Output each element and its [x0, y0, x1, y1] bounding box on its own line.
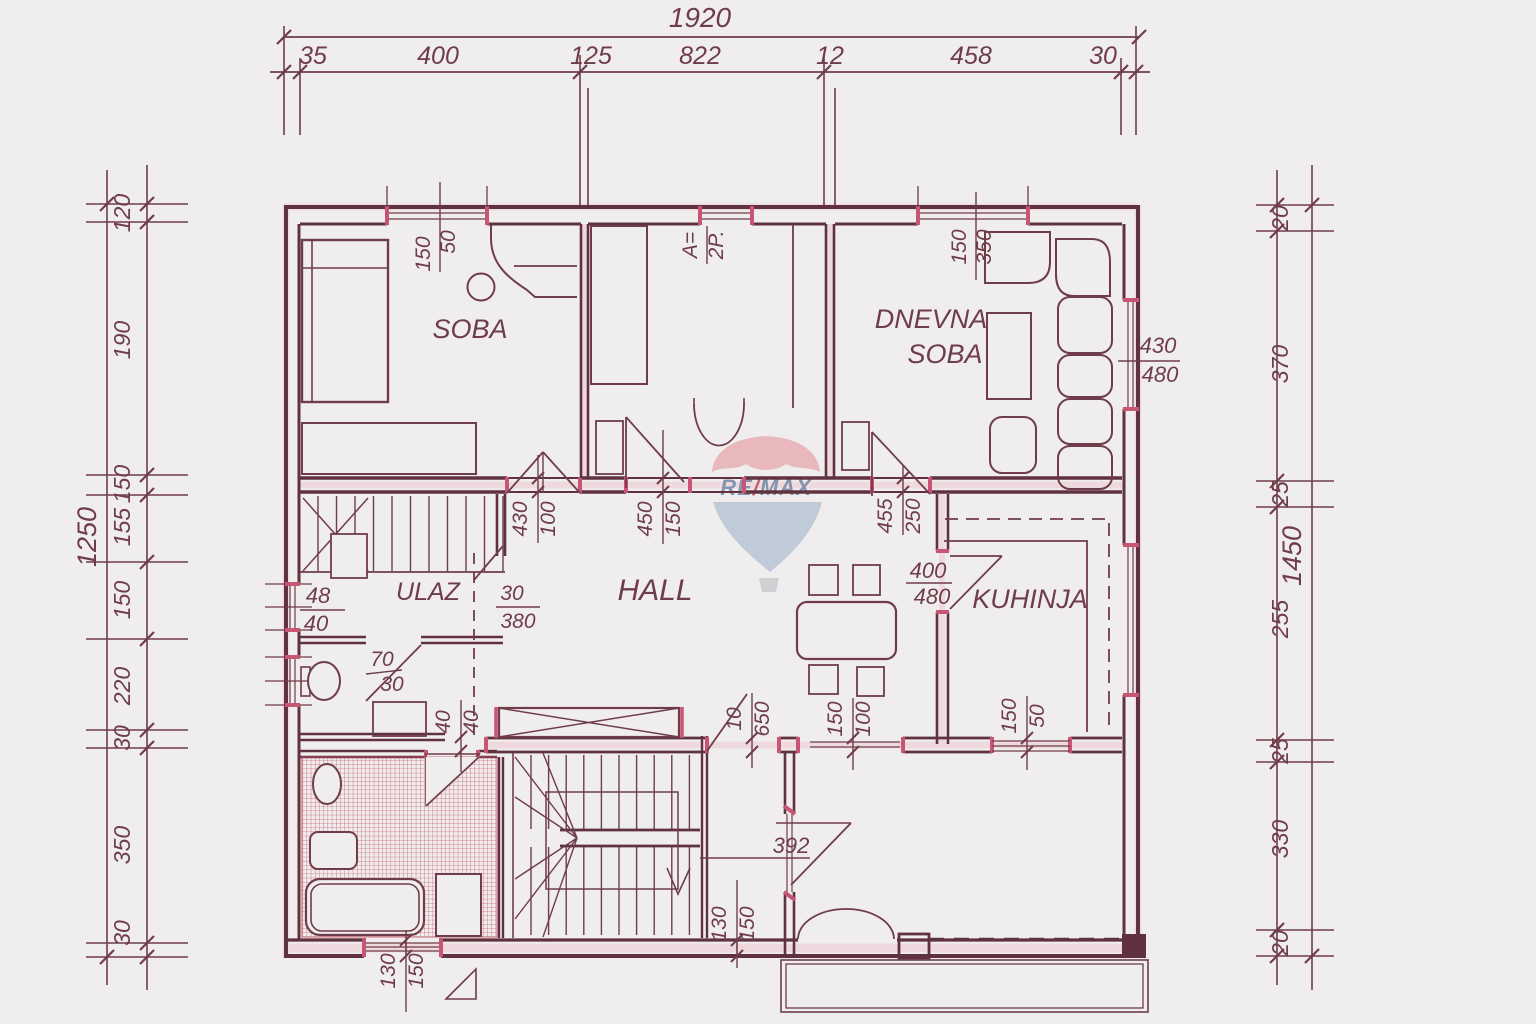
svg-text:650: 650: [751, 701, 774, 736]
svg-text:392: 392: [773, 833, 810, 858]
svg-text:100: 100: [852, 701, 875, 736]
svg-text:458: 458: [950, 42, 992, 70]
svg-text:40: 40: [304, 611, 329, 636]
svg-text:150: 150: [662, 501, 685, 536]
svg-text:1450: 1450: [1277, 526, 1307, 586]
svg-text:155: 155: [109, 508, 135, 547]
svg-text:70: 70: [370, 648, 394, 671]
svg-text:30: 30: [109, 920, 135, 946]
svg-text:150: 150: [948, 229, 971, 264]
svg-text:1250: 1250: [72, 507, 102, 567]
svg-text:40: 40: [460, 710, 483, 734]
svg-text:30: 30: [1089, 42, 1117, 70]
svg-text:20: 20: [1267, 930, 1293, 957]
svg-text:822: 822: [679, 42, 721, 70]
svg-text:1920: 1920: [669, 2, 732, 33]
svg-text:400: 400: [910, 558, 947, 583]
svg-text:125: 125: [570, 42, 612, 70]
svg-text:100: 100: [537, 501, 560, 536]
svg-text:150: 150: [998, 698, 1021, 733]
svg-text:430: 430: [509, 501, 532, 536]
svg-text:10: 10: [723, 707, 746, 731]
svg-text:25: 25: [1267, 481, 1293, 508]
svg-text:400: 400: [417, 42, 459, 70]
svg-text:25: 25: [1267, 738, 1293, 765]
svg-text:30: 30: [500, 582, 524, 605]
svg-text:330: 330: [1267, 820, 1293, 859]
svg-text:150: 150: [824, 701, 847, 736]
svg-text:455: 455: [874, 498, 897, 533]
svg-text:370: 370: [1267, 345, 1293, 384]
svg-text:250: 250: [902, 498, 925, 534]
svg-text:50: 50: [1026, 704, 1049, 728]
svg-text:20: 20: [1267, 205, 1293, 232]
svg-text:150: 150: [412, 236, 435, 271]
svg-text:2P.: 2P.: [705, 231, 728, 261]
svg-text:40: 40: [432, 710, 455, 734]
svg-text:130: 130: [708, 906, 731, 941]
svg-text:150: 150: [405, 953, 428, 988]
svg-text:430: 430: [1140, 333, 1177, 358]
svg-text:480: 480: [1142, 362, 1179, 387]
svg-text:350: 350: [973, 229, 996, 264]
svg-text:120: 120: [109, 194, 135, 233]
svg-text:190: 190: [109, 321, 135, 360]
svg-text:SOBA: SOBA: [432, 314, 507, 344]
svg-text:35: 35: [299, 42, 327, 70]
svg-text:380: 380: [500, 610, 535, 633]
svg-text:DNEVNA: DNEVNA: [875, 304, 988, 334]
svg-text:A=: A=: [679, 232, 702, 260]
svg-text:350: 350: [109, 826, 135, 865]
svg-text:50: 50: [437, 230, 460, 254]
svg-text:KUHINJA: KUHINJA: [972, 584, 1088, 614]
svg-text:130: 130: [377, 953, 400, 988]
svg-text:30: 30: [109, 725, 135, 751]
svg-text:480: 480: [914, 584, 951, 609]
svg-text:150: 150: [109, 465, 135, 504]
svg-text:30: 30: [380, 673, 404, 696]
svg-text:450: 450: [634, 501, 657, 536]
svg-text:48: 48: [306, 583, 331, 608]
svg-text:220: 220: [109, 667, 135, 707]
svg-text:SOBA: SOBA: [907, 339, 982, 369]
svg-text:150: 150: [109, 581, 135, 620]
svg-text:255: 255: [1267, 600, 1293, 640]
svg-text:ULAZ: ULAZ: [396, 578, 461, 606]
svg-text:HALL: HALL: [617, 574, 692, 607]
svg-text:12: 12: [816, 42, 844, 70]
